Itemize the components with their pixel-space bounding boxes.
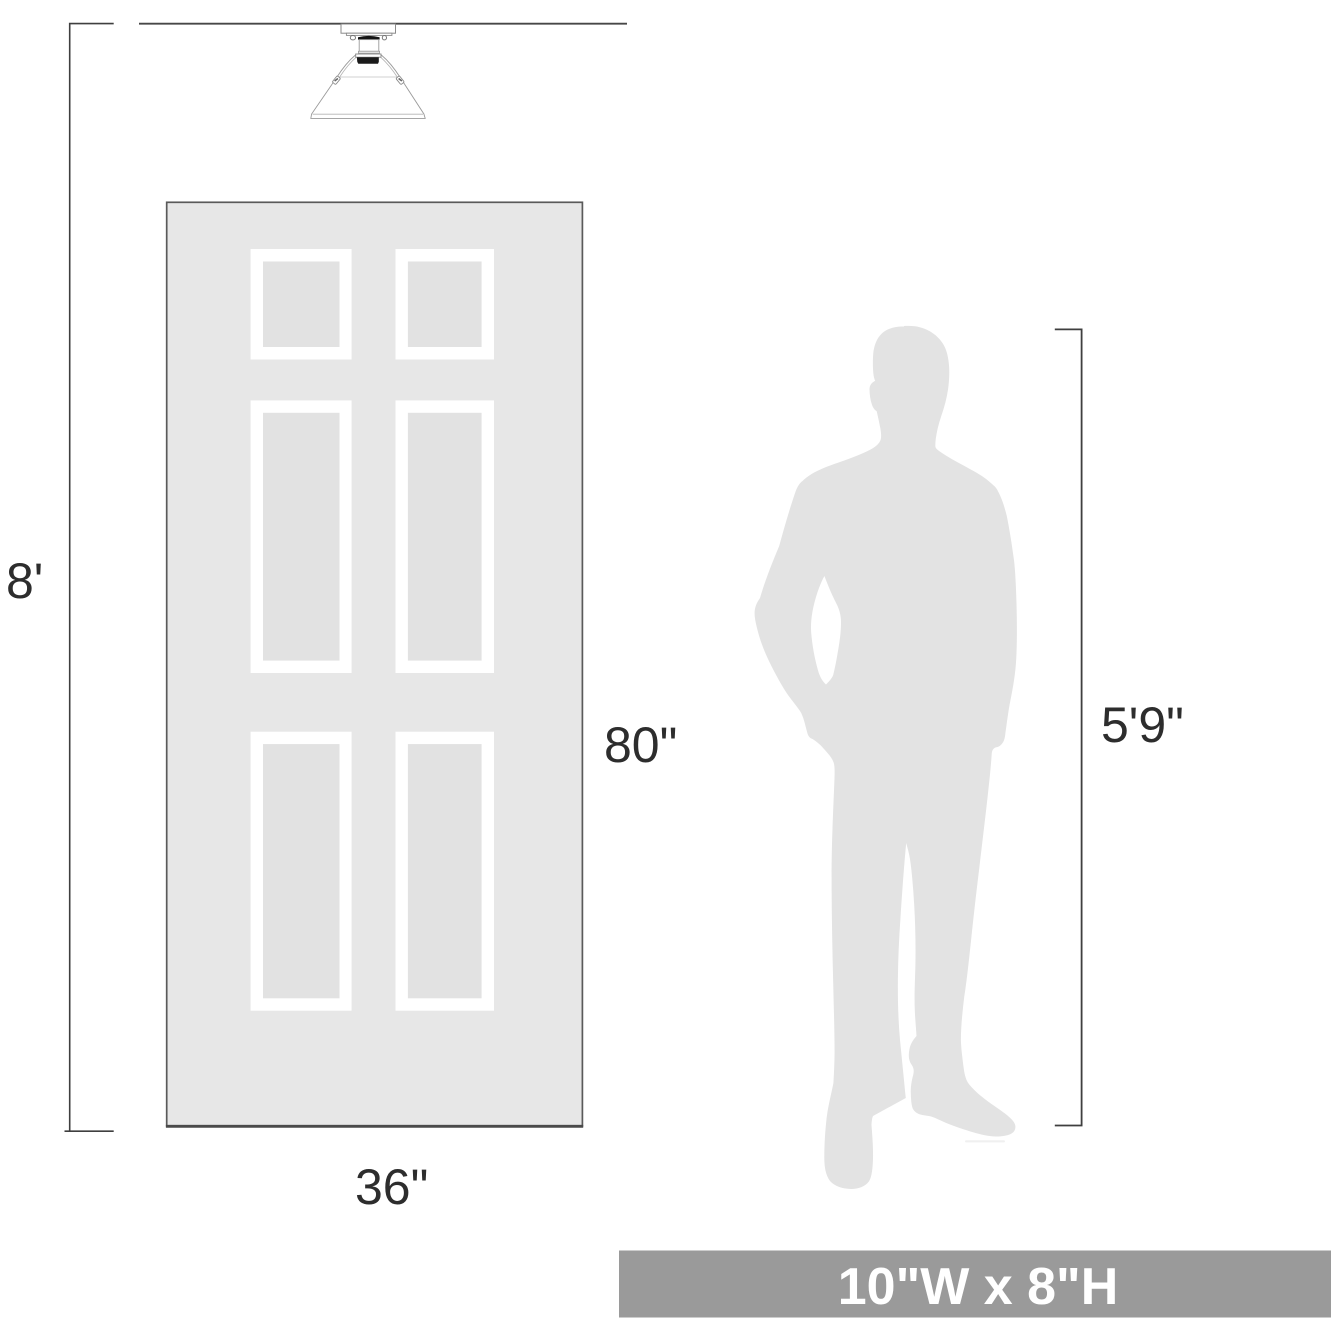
svg-text:10"W x 8"H: 10"W x 8"H <box>838 1258 1119 1316</box>
svg-text:8': 8' <box>6 553 43 609</box>
svg-text:36": 36" <box>355 1159 428 1215</box>
svg-text:5'9": 5'9" <box>1101 697 1184 753</box>
svg-text:80": 80" <box>604 717 677 773</box>
